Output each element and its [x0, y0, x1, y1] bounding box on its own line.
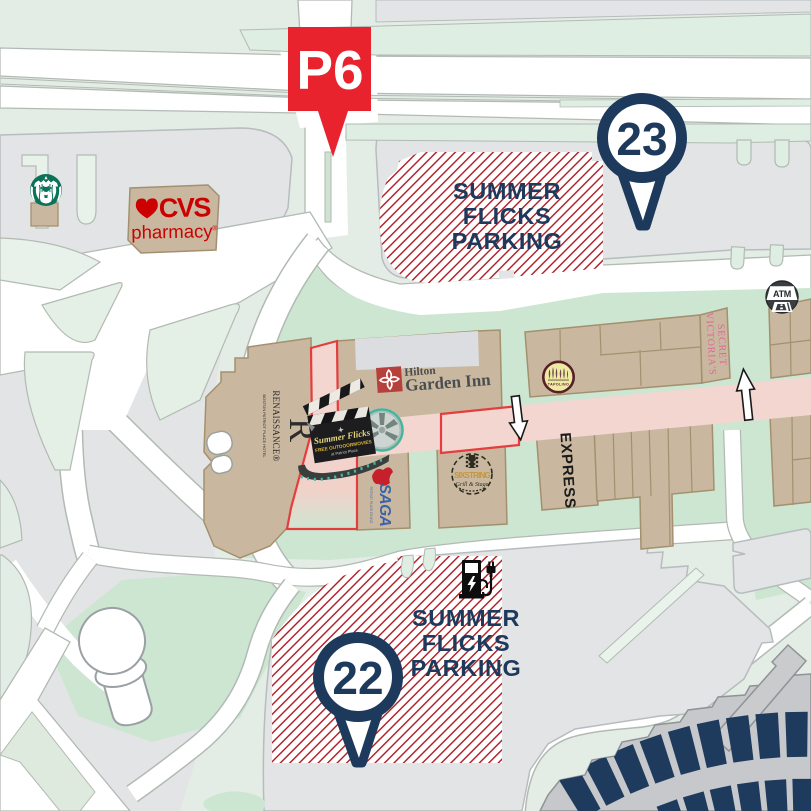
svg-text:BOSTON PATRIOT PLACE HOTEL: BOSTON PATRIOT PLACE HOTEL [262, 394, 267, 458]
svg-text:SIXSTRING: SIXSTRING [454, 471, 490, 480]
svg-text:PARKING: PARKING [452, 228, 563, 254]
svg-text:SECRET: SECRET [715, 324, 728, 367]
svg-text:RENAISSANCE®: RENAISSANCE® [271, 390, 281, 461]
svg-text:CVS: CVS [159, 192, 211, 223]
svg-text:PATRIOT PLACE DINING: PATRIOT PLACE DINING [369, 487, 373, 524]
svg-text:P6: P6 [296, 39, 363, 101]
svg-text:SAGA: SAGA [376, 484, 393, 527]
svg-text:pharmacy: pharmacy [131, 220, 213, 242]
svg-text:22: 22 [332, 652, 383, 704]
svg-text:ATM: ATM [773, 289, 791, 299]
svg-text:23: 23 [616, 113, 667, 165]
svg-text:SUMMER: SUMMER [412, 605, 520, 631]
svg-text:SUMMER: SUMMER [453, 178, 561, 204]
svg-text:FLICKS: FLICKS [422, 630, 510, 656]
svg-text:Grill & Stage: Grill & Stage [456, 482, 489, 488]
svg-text:FLICKS: FLICKS [463, 203, 551, 229]
svg-text:PARKING: PARKING [411, 655, 522, 681]
svg-text:TAPOLINO: TAPOLINO [548, 383, 570, 387]
